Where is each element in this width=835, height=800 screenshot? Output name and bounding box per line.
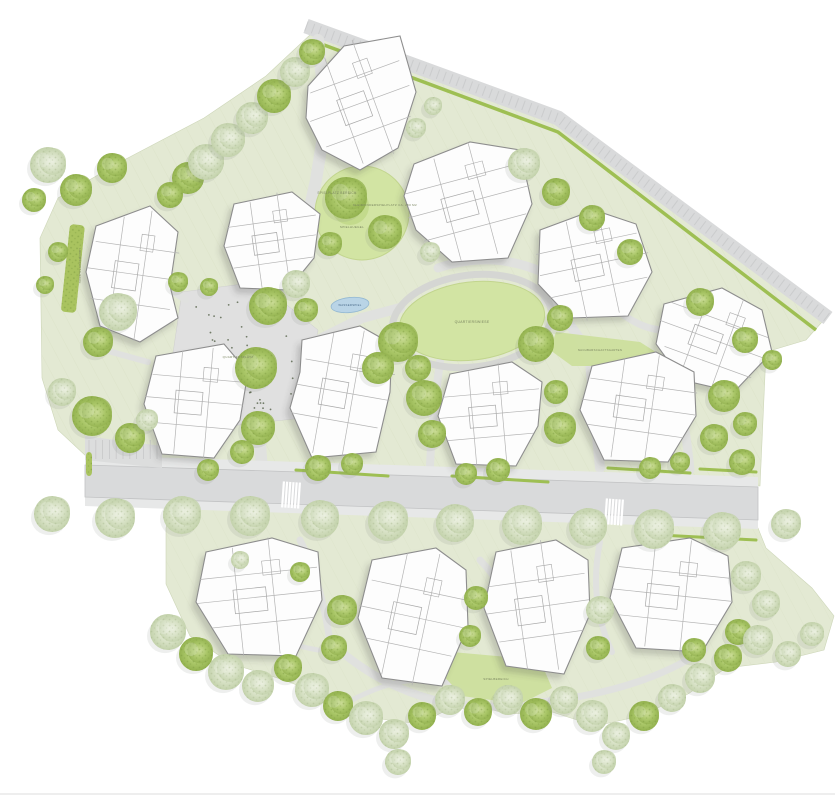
plan-annotation: LAERMSCHUTZHECKE bbox=[78, 248, 82, 283]
plaza-dot bbox=[246, 345, 248, 347]
plan-annotation: WASSERSPIEL bbox=[338, 303, 361, 307]
plaza-dot bbox=[213, 315, 215, 317]
site-plan-drawing: SPIELPLATZ BEREICHKLEINKINDERSPIELPLATZ … bbox=[0, 0, 835, 800]
plan-annotation: KLEINKINDERSPIELPLATZ CA. 250 M2 bbox=[353, 203, 417, 207]
plaza-dot bbox=[246, 336, 248, 338]
plan-annotation: NACHBARSCHAFTSGARTEN bbox=[578, 348, 622, 352]
plaza-dot bbox=[254, 407, 256, 409]
plaza-dot bbox=[285, 335, 287, 337]
plan-annotation: QUARTIERSPLATZ bbox=[223, 355, 254, 359]
plaza-dot bbox=[231, 347, 233, 349]
plaza-dot bbox=[195, 306, 197, 308]
plaza-dot bbox=[291, 361, 293, 363]
plaza-dot bbox=[290, 393, 292, 395]
plaza-dot bbox=[210, 332, 212, 334]
plaza-dot bbox=[260, 402, 262, 404]
plaza-dot bbox=[263, 402, 265, 404]
plaza-dot bbox=[208, 314, 210, 316]
plan-annotation: SPIELHUEGEL bbox=[340, 225, 364, 229]
plaza-dot bbox=[214, 340, 216, 342]
plan-annotation: SPIELBEREICH bbox=[483, 677, 508, 681]
plaza-dot bbox=[292, 377, 294, 379]
plaza-dot bbox=[262, 407, 264, 409]
plaza-dot bbox=[270, 409, 272, 411]
plaza-dot bbox=[259, 399, 261, 401]
plan-annotation: SPIELPLATZ BEREICH bbox=[317, 191, 357, 195]
plaza-dot bbox=[237, 301, 239, 303]
plaza-dot bbox=[212, 339, 214, 341]
plaza-dot bbox=[227, 339, 229, 341]
plaza-dot bbox=[241, 326, 243, 328]
plaza-dot bbox=[257, 402, 259, 404]
plan-annotation: QUARTIERSWIESE bbox=[455, 320, 490, 324]
plaza-dot bbox=[228, 304, 230, 306]
plaza-dot bbox=[220, 317, 222, 319]
site-plan-canvas: SPIELPLATZ BEREICHKLEINKINDERSPIELPLATZ … bbox=[0, 0, 835, 800]
